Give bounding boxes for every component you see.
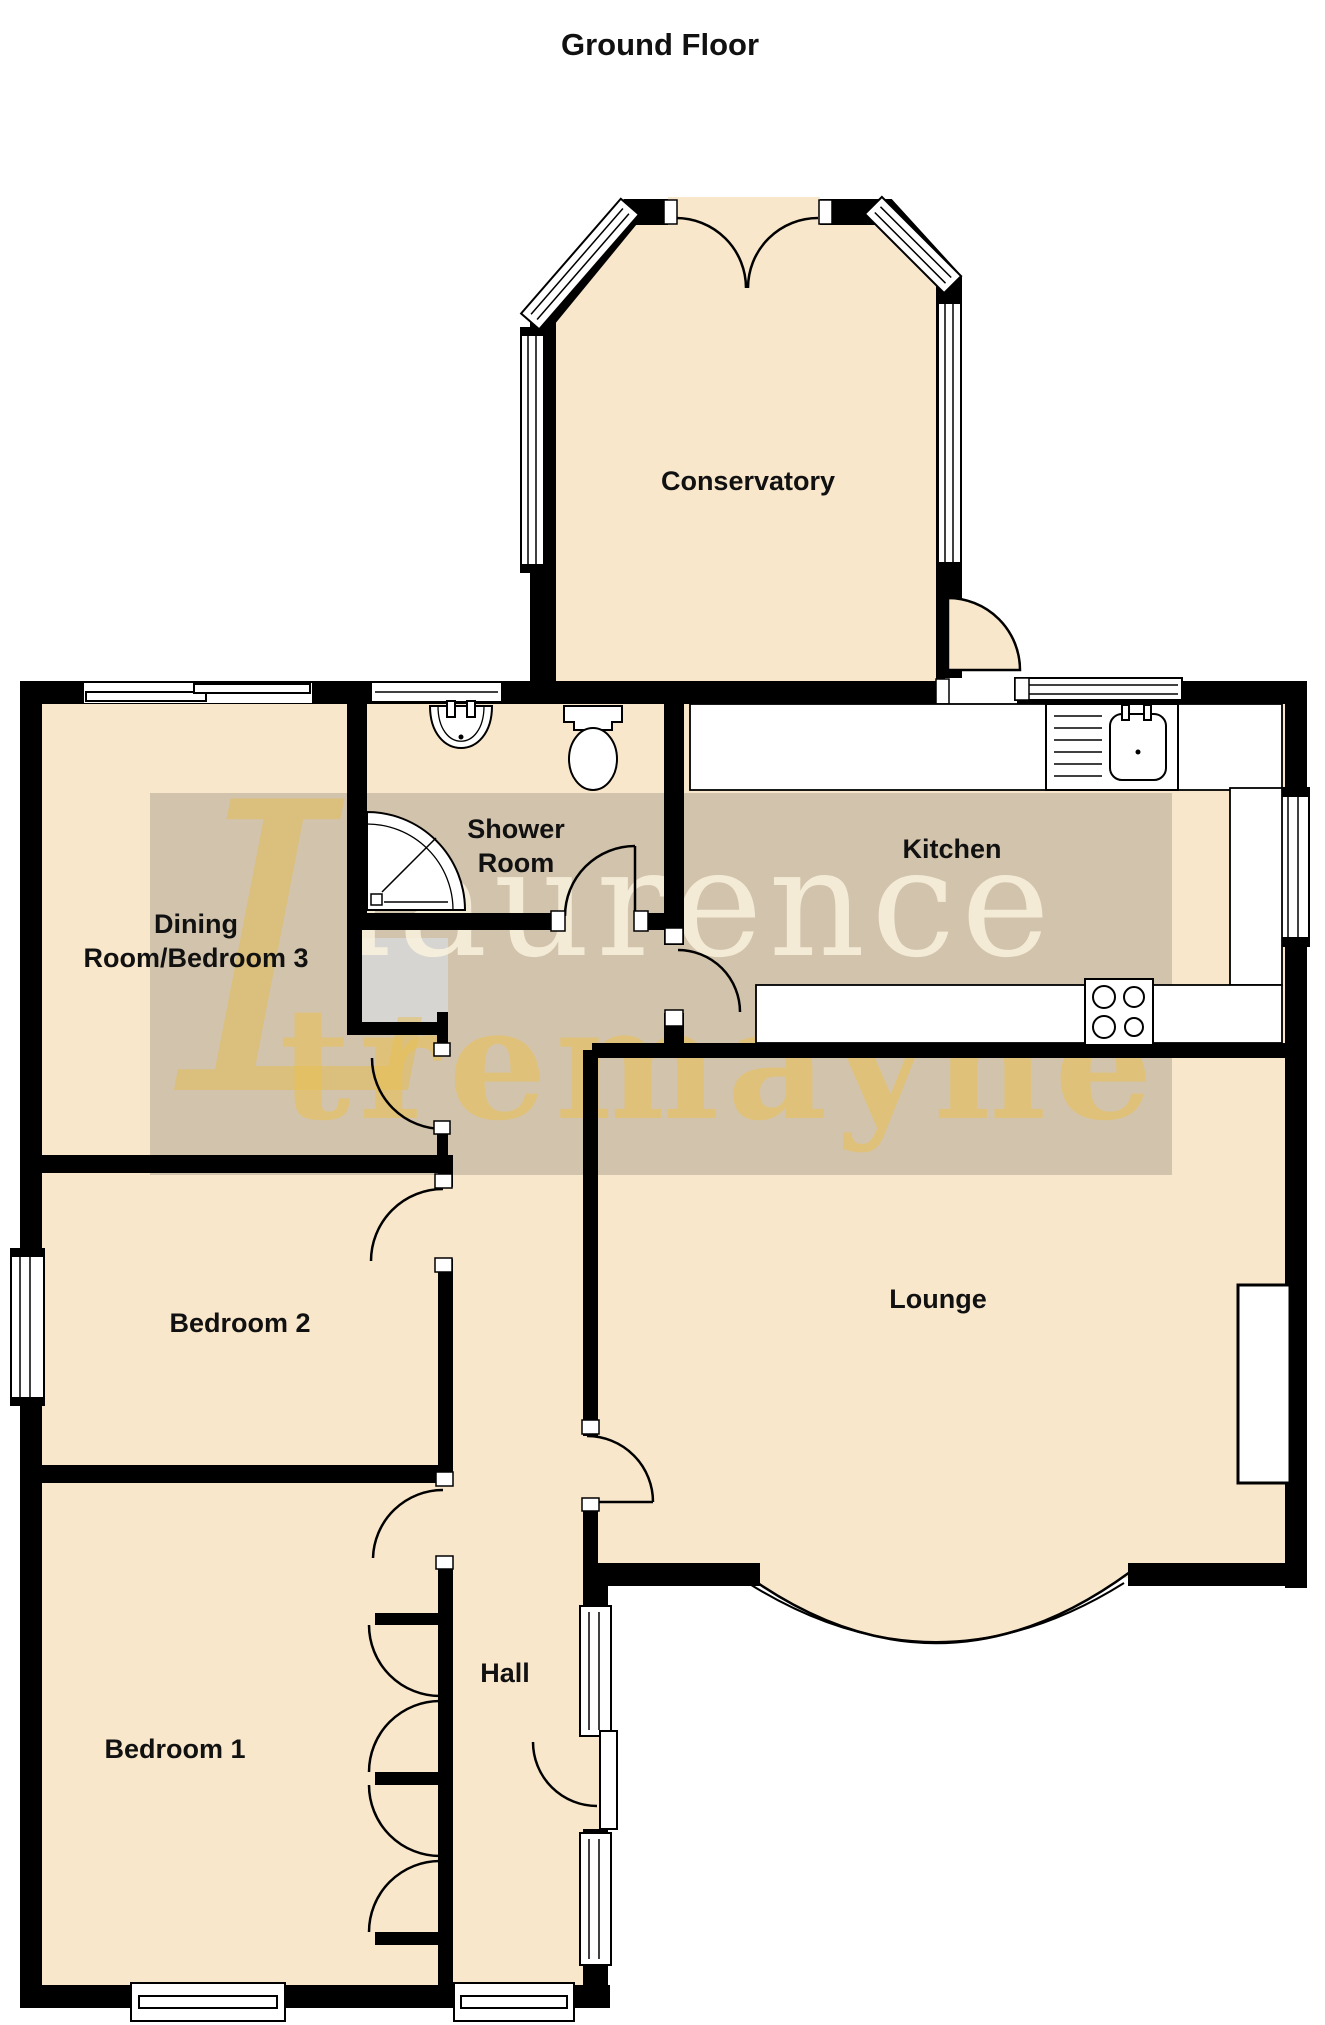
wall-lounge-bottom-right: [1128, 1563, 1307, 1586]
plan-title: Ground Floor: [561, 27, 759, 62]
wall-hall-lounge-upper: [583, 1050, 598, 1436]
bedroom2-window: [11, 1249, 44, 1405]
lounge-label: Lounge: [889, 1284, 986, 1314]
wall-bedroom2-bedroom1: [20, 1465, 448, 1483]
ground-floor-plan: L laurence tremayne: [0, 0, 1325, 2025]
kitchen-sink-icon: [1046, 704, 1178, 790]
bedroom2-label: Bedroom 2: [169, 1308, 310, 1338]
kitchen-conservatory-door: [948, 598, 1020, 670]
floorplan-page: L laurence tremayne: [0, 0, 1325, 2025]
bedroom1-window: [131, 1983, 285, 2021]
wardrobe-stub-2: [375, 1772, 448, 1785]
wardrobe-stub-3: [375, 1932, 448, 1945]
wall-shower-left: [347, 681, 367, 930]
kitchen-right-window: [1279, 788, 1309, 946]
fireplace: [1238, 1285, 1290, 1483]
counter-right: [1230, 788, 1282, 985]
conservatory-door-opening: [668, 197, 820, 227]
wall-wardrobe-back: [438, 1613, 453, 1945]
wall-bedroom2-right-lower: [438, 1259, 453, 1485]
hall-right-upper-window: [580, 1606, 611, 1736]
wall-bedroom1-right-bottom: [438, 1945, 453, 2008]
kitchen-label: Kitchen: [902, 834, 1001, 864]
wall-dining-right: [347, 928, 362, 1024]
wall-shower-bottom-left: [347, 913, 565, 930]
hall-bottom-window: [454, 1983, 574, 2021]
wall-stub-below-dining-door: [437, 1131, 448, 1157]
kitchen-top-window: [1015, 678, 1182, 700]
wall-lounge-bottom-left: [592, 1563, 760, 1586]
hob-icon: [1085, 979, 1153, 1045]
counter-bottom: [756, 985, 1282, 1043]
hall-label: Hall: [480, 1658, 530, 1688]
shower-label-line1: Shower: [467, 814, 565, 844]
shower-window: [371, 682, 502, 702]
shower-label-line2: Room: [478, 848, 555, 878]
conservatory-left-window: [521, 328, 544, 572]
wall-lobby-bottom: [347, 1022, 448, 1035]
wall-dining-bedroom2: [20, 1155, 448, 1173]
toilet-icon: [564, 706, 622, 790]
kitchen-conservatory-door-opening: [945, 678, 1017, 706]
conservatory-right-window: [938, 296, 961, 570]
wall-lounge-top: [592, 1043, 1307, 1058]
dining-label-line2: Room/Bedroom 3: [83, 943, 308, 973]
dining-window: [84, 683, 312, 703]
counter-top: [690, 704, 1282, 790]
bedroom1-label: Bedroom 1: [104, 1734, 245, 1764]
wardrobe-stub-1: [375, 1613, 448, 1625]
conservatory-floor: [544, 206, 938, 693]
hall-right-lower-window: [580, 1833, 611, 1965]
dining-label-line1: Dining: [154, 909, 238, 939]
wall-kitchen-left-upper: [664, 681, 684, 945]
conservatory-label: Conservatory: [661, 466, 835, 496]
